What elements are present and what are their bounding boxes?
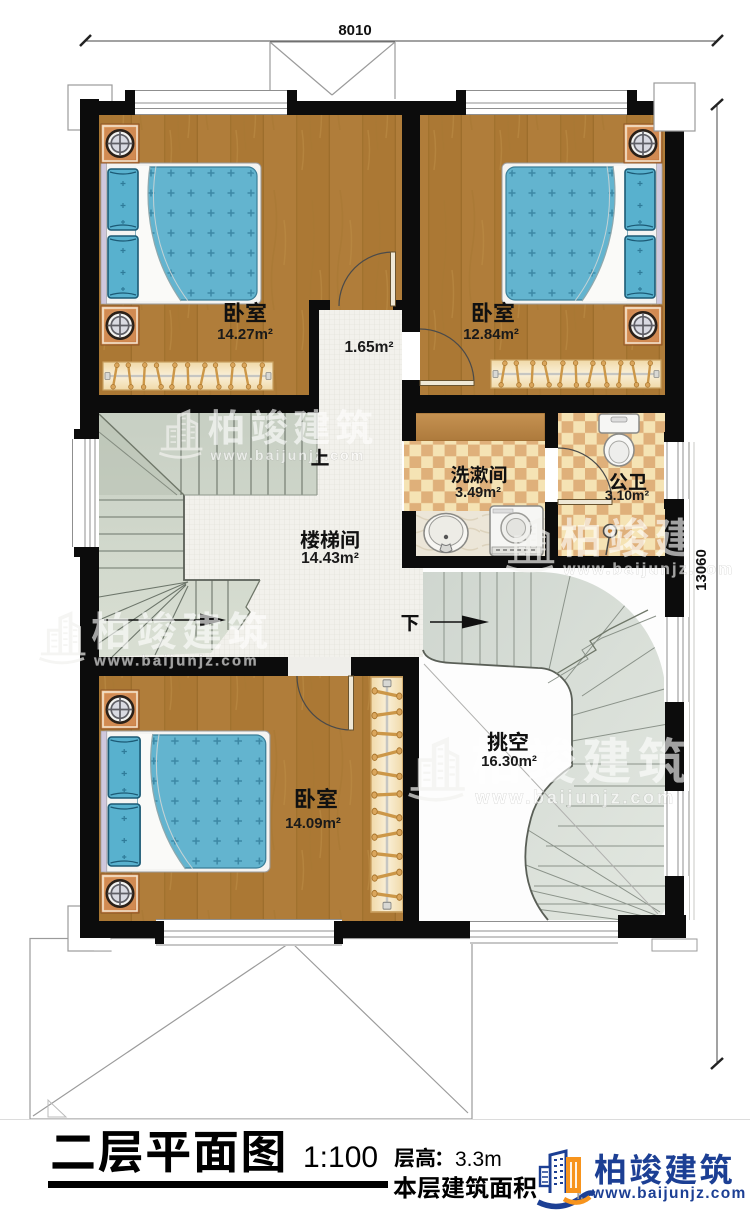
svg-text:1:100: 1:100 <box>303 1141 378 1174</box>
svg-text:12.84m²: 12.84m² <box>463 326 519 343</box>
svg-text:14.27m²: 14.27m² <box>217 326 273 343</box>
svg-text:www.baijunjz.com: www.baijunjz.com <box>474 787 675 807</box>
svg-text:www.baijunjz.com: www.baijunjz.com <box>591 1185 747 1202</box>
svg-text:www.baijunjz.com: www.baijunjz.com <box>210 447 366 463</box>
svg-text:13060: 13060 <box>693 549 710 591</box>
svg-text:www.baijunjz.com: www.baijunjz.com <box>93 654 259 670</box>
svg-text:r.: r. <box>577 1190 584 1202</box>
svg-text:3.49m²: 3.49m² <box>455 485 501 501</box>
svg-text:14.09m²: 14.09m² <box>285 815 341 832</box>
svg-text:16.30m²: 16.30m² <box>481 753 537 770</box>
svg-text:8010: 8010 <box>338 22 371 39</box>
svg-text:3.10m²: 3.10m² <box>605 487 650 503</box>
svg-text:1.65m²: 1.65m² <box>344 339 393 356</box>
svg-text:3.3m: 3.3m <box>455 1148 502 1171</box>
svg-text:14.43m²: 14.43m² <box>301 550 359 567</box>
